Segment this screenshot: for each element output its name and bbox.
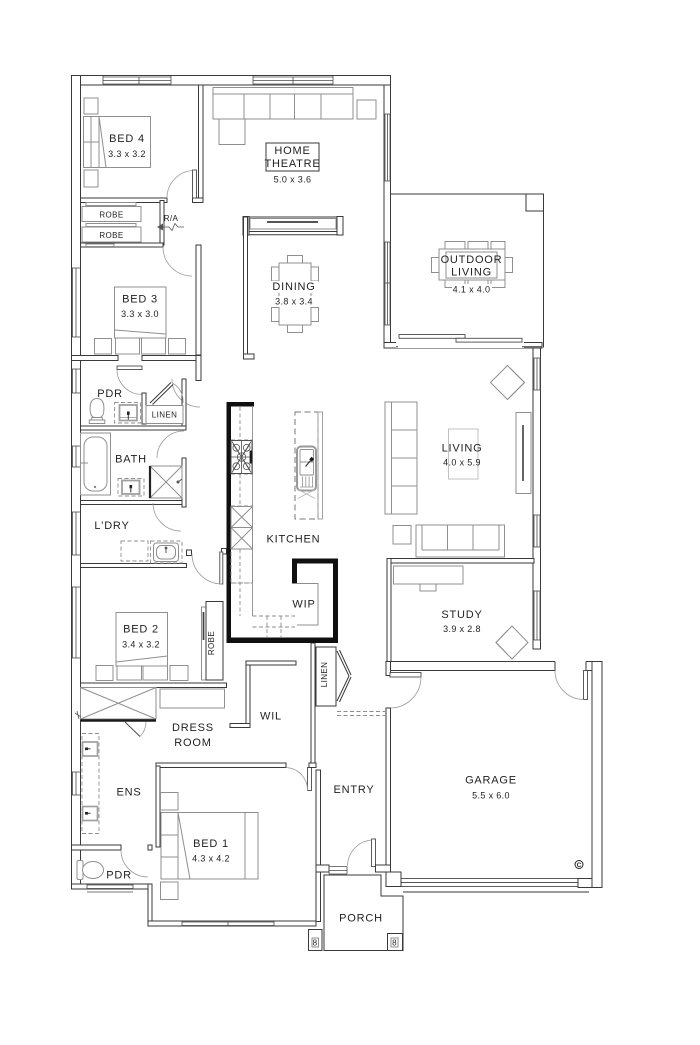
svg-text:BED 2: BED 2 xyxy=(123,624,159,636)
svg-text:DINING: DINING xyxy=(272,281,315,293)
svg-text:ROBE: ROBE xyxy=(99,231,123,240)
svg-text:LINEN: LINEN xyxy=(320,662,329,688)
svg-text:LIVING: LIVING xyxy=(442,443,483,455)
svg-text:4.0 x 5.9: 4.0 x 5.9 xyxy=(443,458,481,468)
svg-text:WIP: WIP xyxy=(292,599,315,611)
svg-text:C: C xyxy=(577,862,582,869)
svg-text:BATH: BATH xyxy=(115,454,147,466)
svg-text:HOME: HOME xyxy=(274,145,310,157)
svg-text:L'DRY: L'DRY xyxy=(94,520,129,532)
svg-text:5.5 x 6.0: 5.5 x 6.0 xyxy=(472,791,510,801)
svg-text:BED 3: BED 3 xyxy=(122,294,158,306)
svg-text:THEATRE: THEATRE xyxy=(264,158,320,170)
svg-text:WIL: WIL xyxy=(260,711,282,723)
svg-text:ROBE: ROBE xyxy=(99,211,123,220)
svg-text:3.9 x 2.8: 3.9 x 2.8 xyxy=(443,624,481,634)
svg-text:3.3 x 3.0: 3.3 x 3.0 xyxy=(121,309,159,319)
svg-text:ENTRY: ENTRY xyxy=(333,784,374,796)
svg-text:STUDY: STUDY xyxy=(441,609,482,621)
svg-text:PDR: PDR xyxy=(106,870,132,882)
svg-text:4.3 x 4.2: 4.3 x 4.2 xyxy=(192,854,230,864)
svg-text:5.0 x 3.6: 5.0 x 3.6 xyxy=(274,175,312,185)
svg-text:3.4 x 3.2: 3.4 x 3.2 xyxy=(122,640,160,650)
svg-text:ROOM: ROOM xyxy=(174,737,211,749)
svg-text:GARAGE: GARAGE xyxy=(465,775,517,787)
svg-text:LINEN: LINEN xyxy=(152,411,178,420)
svg-text:KITCHEN: KITCHEN xyxy=(267,534,321,546)
svg-text:4.1 x 4.0: 4.1 x 4.0 xyxy=(453,285,491,295)
svg-text:BED 4: BED 4 xyxy=(109,133,145,145)
svg-text:3.8 x 3.4: 3.8 x 3.4 xyxy=(275,297,313,307)
svg-text:PORCH: PORCH xyxy=(339,913,383,925)
svg-text:R/A: R/A xyxy=(164,214,179,223)
svg-text:8: 8 xyxy=(392,939,397,948)
svg-text:3.3 x 3.2: 3.3 x 3.2 xyxy=(108,149,146,159)
svg-text:BED 1: BED 1 xyxy=(193,838,229,850)
svg-text:OUTDOOR: OUTDOOR xyxy=(441,254,503,266)
svg-text:8: 8 xyxy=(313,939,318,948)
svg-text:LIVING: LIVING xyxy=(451,267,492,279)
svg-text:ROBE: ROBE xyxy=(207,631,216,655)
svg-text:PDR: PDR xyxy=(97,388,123,400)
svg-text:ENS: ENS xyxy=(116,787,141,799)
svg-text:DRESS: DRESS xyxy=(172,722,214,734)
